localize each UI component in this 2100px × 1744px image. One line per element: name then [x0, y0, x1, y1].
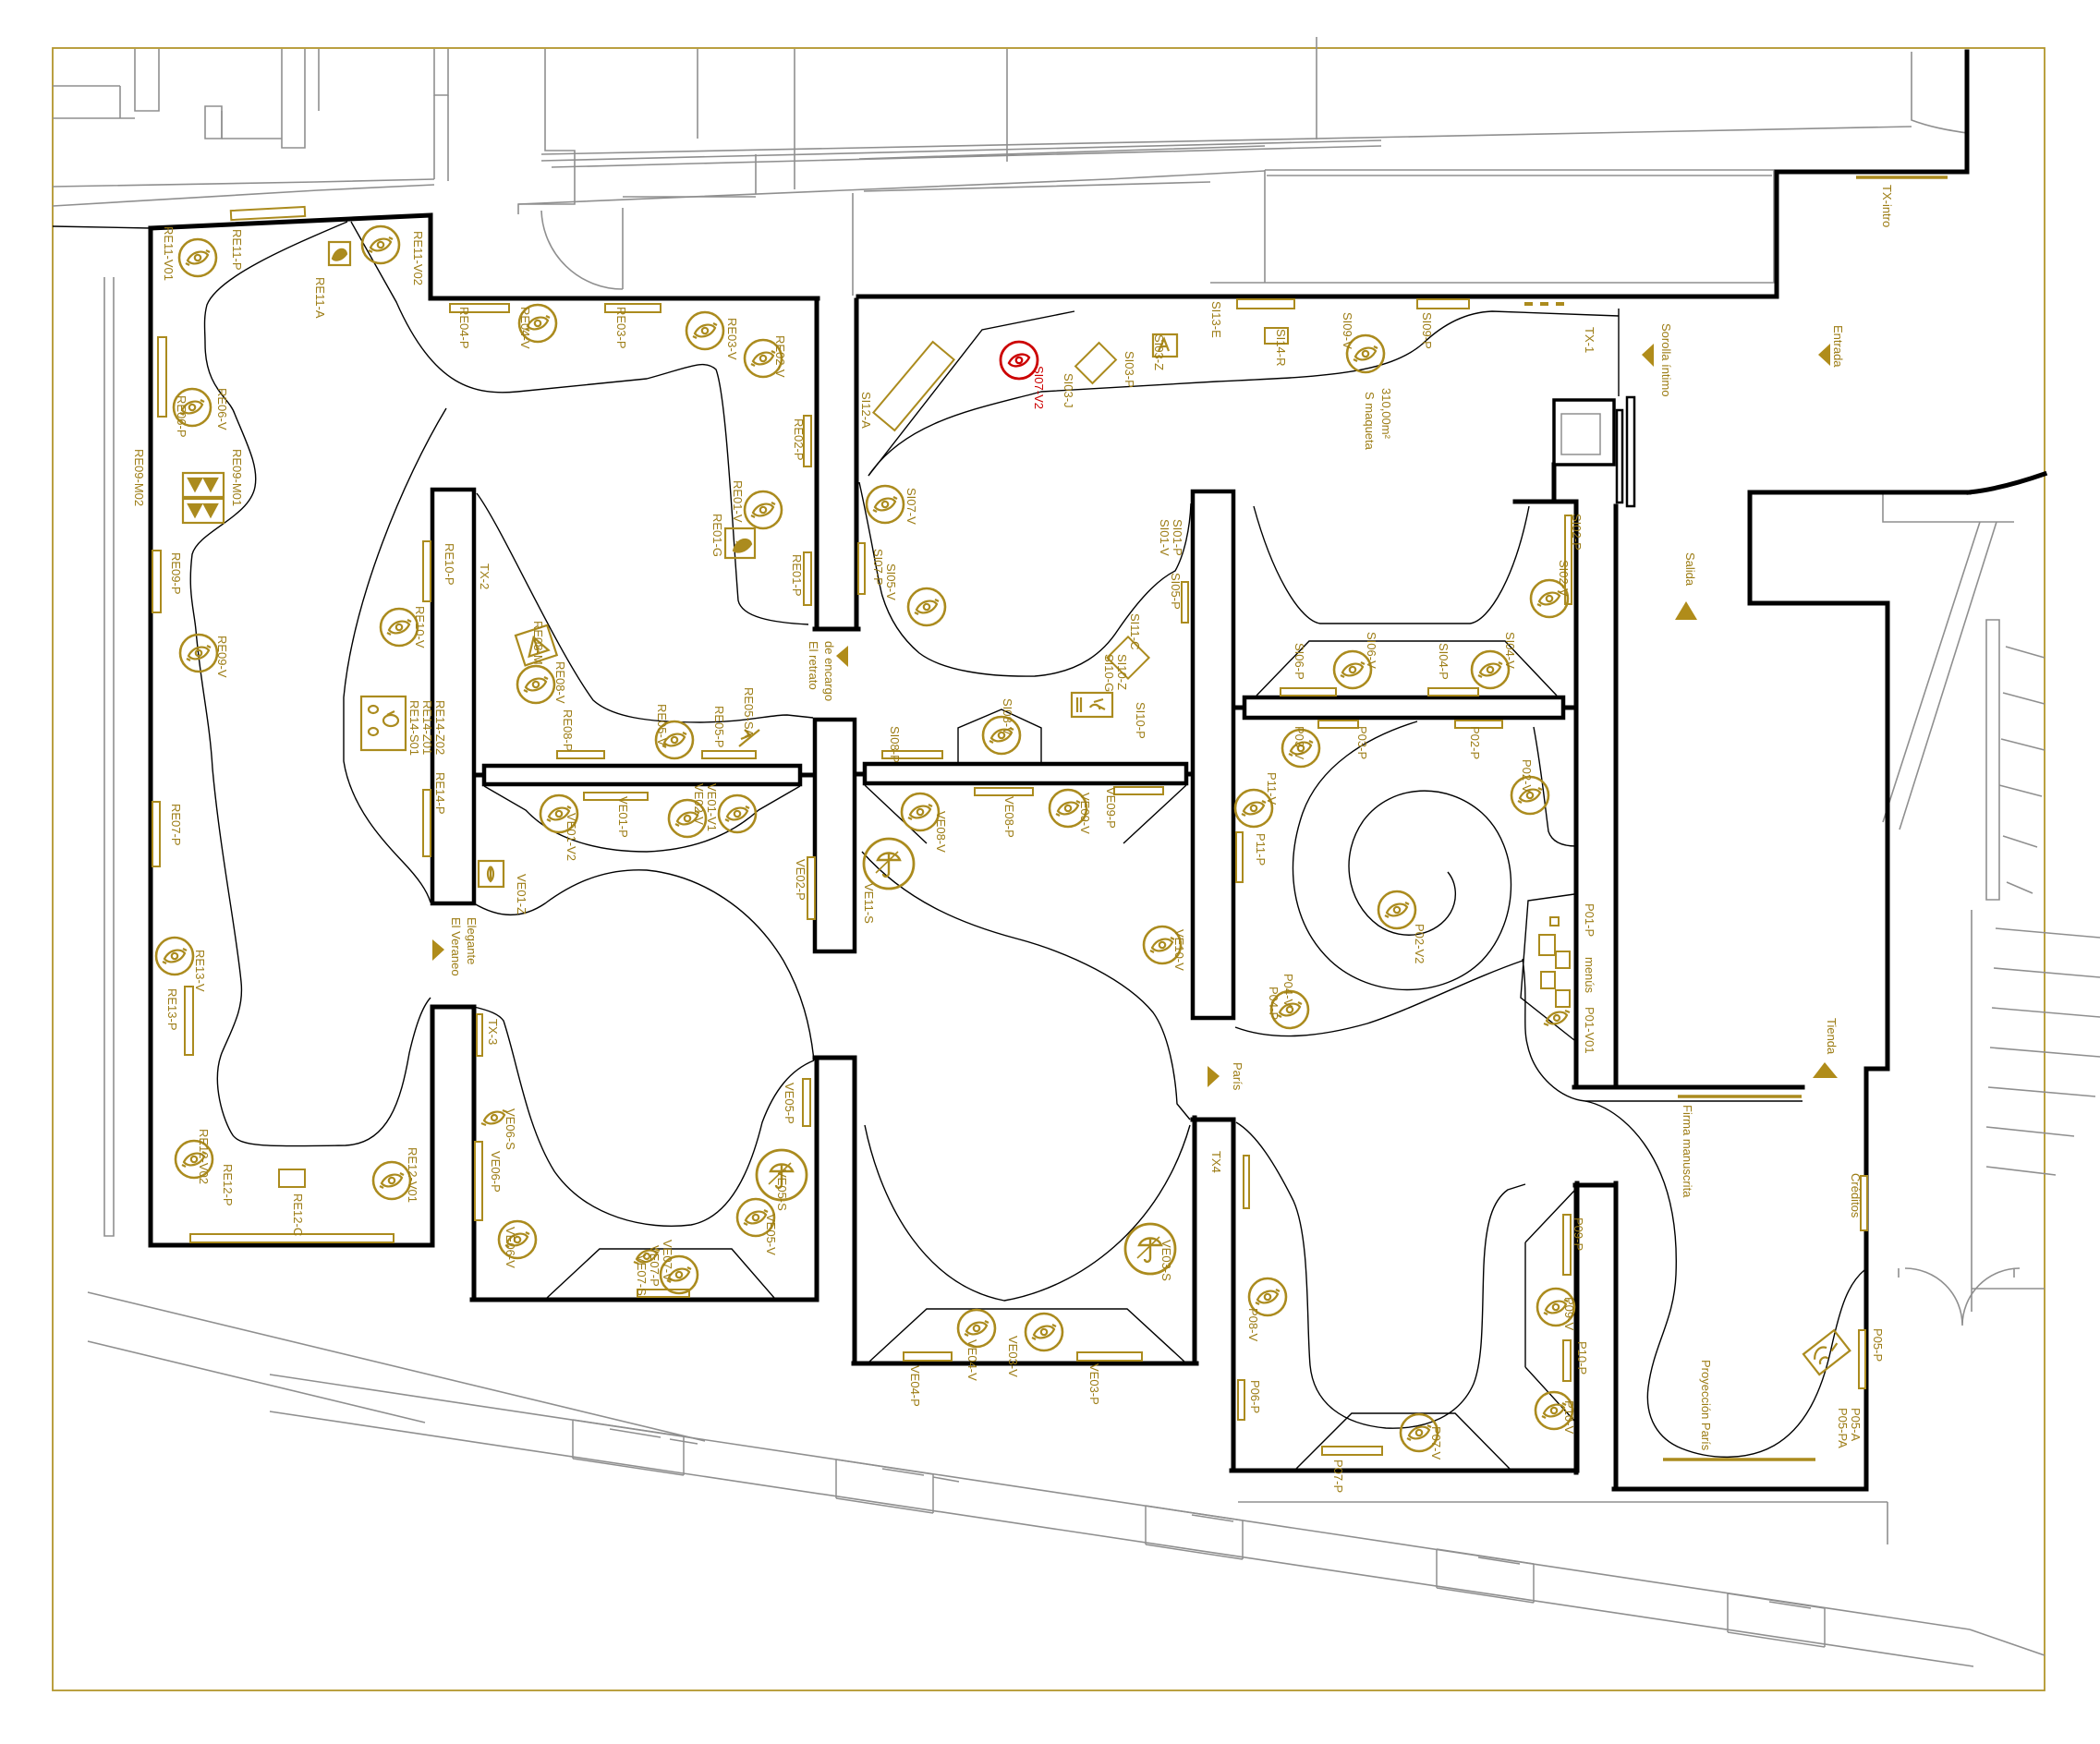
svg-text:RE06-V: RE06-V [215, 388, 229, 430]
svg-text:TX-3: TX-3 [486, 1019, 500, 1045]
svg-text:El retrato: El retrato [807, 641, 820, 690]
svg-text:SI09-P: SI09-P [1420, 312, 1434, 349]
svg-text:Firma manuscrita: Firma manuscrita [1681, 1105, 1694, 1198]
svg-text:P05-P: P05-P [1871, 1328, 1885, 1362]
svg-text:TX-intro: TX-intro [1880, 185, 1894, 227]
svg-text:RE05-V: RE05-V [655, 704, 669, 746]
svg-text:RE13-V: RE13-V [193, 950, 207, 992]
svg-text:P02-V: P02-V [1520, 759, 1534, 793]
svg-text:SI13-E: SI13-E [1209, 301, 1223, 338]
svg-text:RE12-V02: RE12-V02 [197, 1129, 211, 1184]
svg-text:RE12-C: RE12-C [291, 1193, 305, 1236]
svg-text:RE11-A: RE11-A [313, 277, 327, 319]
svg-text:Entrada: Entrada [1831, 325, 1845, 368]
svg-text:Créditos: Créditos [1849, 1173, 1863, 1218]
svg-text:de encargo: de encargo [822, 641, 836, 701]
svg-text:P02-P: P02-P [1468, 726, 1482, 759]
svg-text:RE14-Z02: RE14-Z02 [433, 700, 447, 755]
svg-text:P08-V: P08-V [1246, 1308, 1260, 1341]
svg-text:310,00m²: 310,00m² [1379, 388, 1393, 440]
svg-text:SI09-V: SI09-V [1341, 312, 1354, 349]
svg-text:P01-P: P01-P [1583, 903, 1596, 937]
svg-text:RE11-V02: RE11-V02 [411, 231, 425, 285]
svg-text:El Veraneo: El Veraneo [449, 917, 463, 976]
svg-text:RE09-M02: RE09-M02 [132, 449, 146, 506]
svg-text:RE12-V01: RE12-V01 [406, 1147, 419, 1203]
svg-text:RE14-Z01: RE14-Z01 [420, 700, 434, 755]
svg-text:RE07-P: RE07-P [169, 804, 183, 846]
svg-text:Sorolla íntimo: Sorolla íntimo [1659, 323, 1673, 396]
svg-text:P03-P: P03-P [1355, 726, 1369, 759]
svg-text:RE08-P: RE08-P [561, 709, 575, 752]
svg-text:P07-P: P07-P [1331, 1459, 1345, 1493]
svg-text:SI05-V: SI05-V [884, 563, 898, 600]
svg-text:RE09-V: RE09-V [215, 636, 229, 678]
svg-text:P11-V: P11-V [1265, 772, 1279, 805]
svg-text:P02-V2: P02-V2 [1413, 924, 1426, 963]
svg-text:P10-V: P10-V [1562, 1400, 1576, 1434]
svg-text:RE01-V: RE01-V [731, 480, 745, 523]
svg-text:RE11-V01: RE11-V01 [162, 226, 176, 281]
svg-text:RE10-P: RE10-P [443, 543, 456, 586]
svg-text:RE04-V: RE04-V [518, 307, 532, 349]
svg-text:RE04-P: RE04-P [457, 307, 471, 349]
svg-text:RE14-S01: RE14-S01 [407, 700, 421, 756]
svg-text:SI12-A: SI12-A [859, 392, 873, 429]
svg-text:VE01-V1: VE01-V1 [705, 783, 719, 831]
svg-text:VE08-P: VE08-P [1002, 796, 1016, 838]
svg-text:SI01-P: SI01-P [1171, 519, 1184, 556]
svg-text:menús: menús [1583, 957, 1596, 994]
svg-text:SI03-J: SI03-J [1062, 373, 1075, 408]
svg-text:SI04-V: SI04-V [1503, 632, 1517, 669]
svg-text:Elegante: Elegante [465, 917, 479, 964]
svg-text:VE05-V: VE05-V [764, 1214, 778, 1255]
svg-text:RE14-P: RE14-P [433, 772, 447, 815]
svg-text:RE12-P: RE12-P [221, 1164, 235, 1206]
svg-text:RE08-V: RE08-V [553, 661, 567, 704]
svg-text:RE11-P: RE11-P [230, 229, 244, 271]
svg-text:VE06-V: VE06-V [504, 1227, 517, 1268]
svg-text:P01-V01: P01-V01 [1583, 1007, 1596, 1054]
svg-text:SI08-P: SI08-P [888, 726, 902, 763]
svg-text:SI08-V: SI08-V [1001, 698, 1014, 735]
svg-text:SI10-P: SI10-P [1134, 702, 1147, 739]
svg-text:VE02-V: VE02-V [692, 783, 706, 825]
svg-text:P05-A: P05-A [1849, 1408, 1863, 1441]
svg-text:TX4: TX4 [1209, 1151, 1223, 1173]
svg-text:VE11-S: VE11-S [862, 883, 876, 924]
svg-text:SI02-V: SI02-V [1557, 560, 1571, 597]
svg-text:VE10-V: VE10-V [1172, 929, 1186, 971]
svg-text:VE03-V: VE03-V [1006, 1336, 1020, 1377]
svg-text:VE07-V: VE07-V [661, 1240, 674, 1281]
svg-text:RE09-P: RE09-P [169, 552, 183, 595]
svg-text:VE05-S: VE05-S [775, 1169, 789, 1211]
svg-text:SI07-V: SI07-V [904, 488, 918, 525]
svg-text:RE03-P: RE03-P [614, 307, 628, 349]
svg-text:SI01-V: SI01-V [1158, 519, 1171, 556]
svg-text:VE07-S: VE07-S [635, 1254, 649, 1296]
svg-text:VE07-P: VE07-P [648, 1245, 662, 1287]
svg-text:VE04-V: VE04-V [965, 1339, 979, 1381]
svg-text:VE09-V: VE09-V [1078, 793, 1092, 834]
svg-text:VE08-V: VE08-V [934, 811, 948, 853]
svg-text:S maqueta: S maqueta [1363, 392, 1377, 451]
svg-text:RE08-M: RE08-M [531, 621, 545, 665]
svg-text:RE01-G: RE01-G [710, 514, 724, 557]
svg-text:VE01-V2: VE01-V2 [564, 813, 578, 861]
svg-text:SI02-P: SI02-P [1570, 514, 1584, 551]
svg-text:RE09-M01: RE09-M01 [230, 449, 244, 506]
svg-text:RE02-P: RE02-P [792, 418, 806, 461]
svg-text:P09-V: P09-V [1562, 1297, 1576, 1330]
svg-text:SI06-V: SI06-V [1365, 632, 1378, 669]
svg-text:SI07-P: SI07-P [871, 549, 885, 586]
svg-text:VE01-Z: VE01-Z [515, 874, 528, 914]
svg-text:VE06-P: VE06-P [489, 1151, 503, 1193]
svg-text:París: París [1231, 1062, 1244, 1091]
svg-text:P11-P: P11-P [1254, 833, 1268, 866]
svg-text:SI03-P: SI03-P [1123, 351, 1136, 388]
svg-text:VE02-P: VE02-P [794, 859, 807, 901]
svg-text:SI11-C: SI11-C [1128, 613, 1142, 650]
svg-text:VE03-S: VE03-S [1159, 1240, 1173, 1281]
svg-text:VE01-P: VE01-P [616, 796, 630, 838]
svg-text:SI10-Z: SI10-Z [1115, 654, 1129, 690]
svg-text:Tienda: Tienda [1825, 1018, 1839, 1055]
svg-text:RE02-V: RE02-V [773, 335, 787, 378]
svg-text:VE03-P: VE03-P [1087, 1363, 1101, 1405]
svg-text:P07-V: P07-V [1429, 1426, 1443, 1459]
svg-text:Salida: Salida [1683, 552, 1697, 587]
svg-text:SI06-P: SI06-P [1293, 643, 1306, 680]
svg-text:VE05-P: VE05-P [783, 1083, 796, 1124]
svg-text:P05-PA: P05-PA [1836, 1408, 1850, 1448]
svg-text:SI05-P: SI05-P [1169, 573, 1183, 610]
svg-text:VE09-P: VE09-P [1104, 787, 1118, 829]
svg-text:RE05-SA: RE05-SA [742, 687, 756, 738]
svg-text:SI14-R: SI14-R [1274, 329, 1288, 366]
svg-text:RE06-P: RE06-P [175, 395, 188, 438]
svg-text:TX-2: TX-2 [478, 563, 492, 589]
svg-text:P03-V: P03-V [1293, 726, 1306, 759]
svg-text:P04-V: P04-V [1281, 974, 1295, 1007]
svg-text:RE10-V: RE10-V [413, 606, 427, 648]
svg-text:P04-P: P04-P [1267, 987, 1281, 1020]
svg-text:SI10-G: SI10-G [1102, 654, 1116, 692]
svg-text:TX-1: TX-1 [1583, 327, 1596, 353]
svg-text:P10-P: P10-P [1575, 1341, 1589, 1375]
svg-text:P06-P: P06-P [1248, 1380, 1262, 1413]
svg-text:VE06-S: VE06-S [504, 1108, 517, 1150]
svg-text:RE05-P: RE05-P [712, 706, 726, 748]
svg-text:Proyección París: Proyección París [1699, 1360, 1713, 1451]
svg-text:SI04-P: SI04-P [1437, 643, 1451, 680]
svg-text:SI07-V2: SI07-V2 [1032, 366, 1046, 409]
svg-text:RE13-P: RE13-P [165, 988, 179, 1031]
svg-text:P09-P: P09-P [1572, 1217, 1585, 1251]
svg-text:RE01-P: RE01-P [790, 554, 804, 597]
svg-text:SI03-Z: SI03-Z [1152, 334, 1166, 370]
svg-text:VE04-P: VE04-P [908, 1365, 922, 1407]
svg-text:RE03-V: RE03-V [725, 318, 739, 360]
